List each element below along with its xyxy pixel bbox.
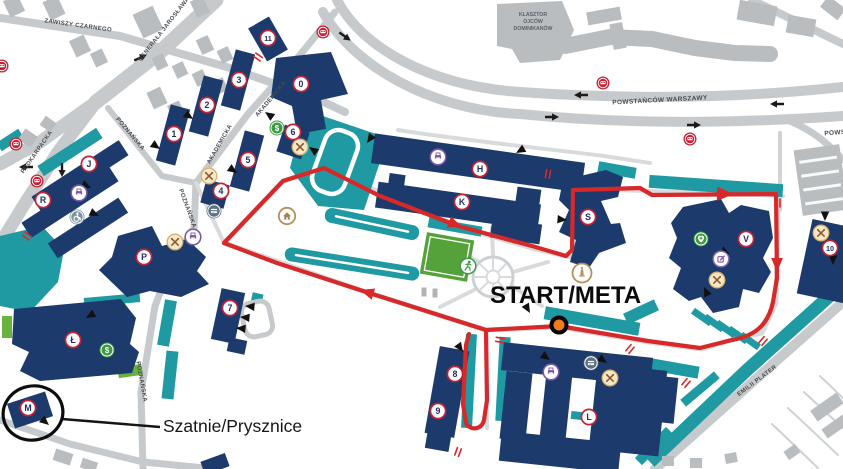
start-meta-point — [552, 318, 567, 333]
svg-text:S: S — [585, 212, 591, 222]
cash-card-icon — [207, 204, 222, 219]
building-badge-V: V — [738, 231, 753, 246]
building-badge-P: P — [136, 249, 151, 264]
bus-stop-icon — [317, 26, 330, 39]
print-icon — [71, 185, 87, 201]
svg-text:7: 7 — [228, 303, 233, 313]
building-badge-4: 4 — [213, 183, 228, 198]
traffic-direction-arrow-icon — [770, 100, 784, 107]
svg-text:J: J — [87, 159, 92, 169]
svg-text:4: 4 — [219, 186, 224, 196]
building-badge-8: 8 — [447, 366, 462, 381]
start-meta-label: START/META — [490, 282, 641, 309]
building-badge-6: 6 — [285, 124, 300, 139]
apartment-block — [794, 144, 843, 216]
svg-text:H: H — [477, 164, 483, 174]
atm-icon: $ — [270, 121, 285, 136]
svg-text:M: M — [24, 403, 31, 413]
building-badge-S: S — [580, 209, 595, 224]
svg-text:3: 3 — [237, 75, 242, 85]
building-badge-10: 10 — [822, 240, 837, 255]
building-badge-1: 1 — [166, 126, 181, 141]
svg-text:V: V — [743, 234, 749, 244]
edit-icon — [713, 251, 729, 267]
route-crossing-mark — [682, 379, 690, 388]
route-crossing-mark — [254, 53, 263, 61]
print-icon — [543, 364, 559, 380]
food-icon — [292, 139, 308, 155]
building-badge-Ł: Ł — [65, 332, 80, 347]
svg-text:2: 2 — [205, 100, 210, 110]
bus-stop-icon — [684, 133, 697, 146]
building-badge-7: 7 — [222, 300, 237, 315]
svg-text:0: 0 — [299, 79, 304, 89]
svg-text:Ł: Ł — [70, 335, 76, 345]
building-badge-J: J — [81, 156, 96, 171]
print-icon — [430, 149, 446, 165]
building-badge-3: 3 — [231, 72, 246, 87]
building-badge-H: H — [472, 161, 487, 176]
food-icon — [201, 168, 217, 184]
campus-map: ZAWISZY CZARNEGOGENERAŁA JAROSŁAWA DĄBPO… — [0, 0, 843, 469]
svg-text:10: 10 — [826, 244, 834, 253]
building-badge-L: L — [581, 409, 596, 424]
entrance-arrow-icon — [821, 212, 829, 222]
svg-text:11: 11 — [264, 34, 272, 43]
campus-map-screenshot: ZAWISZY CZARNEGOGENERAŁA JAROSŁAWA DĄBPO… — [0, 0, 843, 469]
building-badge-R: R — [35, 192, 50, 207]
runner-icon — [460, 258, 476, 274]
wheelchair-icon — [70, 210, 85, 225]
bus-stop-icon — [597, 77, 610, 90]
building-badge-9: 9 — [430, 403, 445, 418]
home-icon — [279, 208, 295, 224]
food-icon — [602, 370, 618, 386]
monastery-building — [497, 1, 574, 63]
building-badge-K: K — [454, 194, 469, 209]
svg-text:8: 8 — [453, 369, 458, 379]
building-badge-11: 11 — [260, 30, 275, 45]
svg-text:1: 1 — [172, 129, 177, 139]
cash-card-icon — [584, 356, 599, 371]
svg-text:5: 5 — [246, 155, 251, 165]
street-label: POWSTAŃCÓW WARSZAWY — [824, 122, 843, 138]
route-crossing-mark — [455, 448, 461, 457]
svg-text:$: $ — [275, 124, 280, 133]
route-arrowhead — [771, 258, 783, 272]
building-badge-2: 2 — [199, 97, 214, 112]
atm-icon: $ — [100, 343, 115, 358]
svg-text:K: K — [459, 197, 466, 207]
svg-text:P: P — [141, 252, 147, 262]
locker-rooms-label: Szatnie/Prysznice — [163, 416, 302, 436]
print-icon — [185, 229, 201, 245]
food-icon — [709, 272, 725, 288]
bus-stop-icon — [31, 175, 44, 188]
landmark-label: DOMINIKANÓW — [514, 24, 553, 32]
food-icon — [813, 225, 829, 241]
building-badge-5: 5 — [240, 152, 255, 167]
svg-text:$: $ — [105, 346, 110, 355]
sports-field — [420, 232, 475, 282]
street-label: AKADEMICKA — [206, 123, 234, 165]
bus-stop-icon — [10, 138, 23, 151]
route-crossing-mark — [626, 345, 634, 354]
svg-text:L: L — [586, 412, 592, 422]
svg-text:9: 9 — [436, 406, 441, 416]
svg-text:6: 6 — [291, 127, 296, 137]
bus-stop-icon — [0, 60, 9, 73]
first-aid-icon — [694, 232, 709, 247]
monument-icon — [573, 264, 592, 283]
landmark-label: KLASZTOR — [519, 12, 547, 18]
food-icon — [167, 234, 183, 250]
landmark-label: OJCÓW — [523, 17, 543, 25]
svg-text:R: R — [40, 195, 47, 205]
building-badge-M: M — [20, 400, 35, 415]
building-badge-0: 0 — [293, 76, 308, 91]
